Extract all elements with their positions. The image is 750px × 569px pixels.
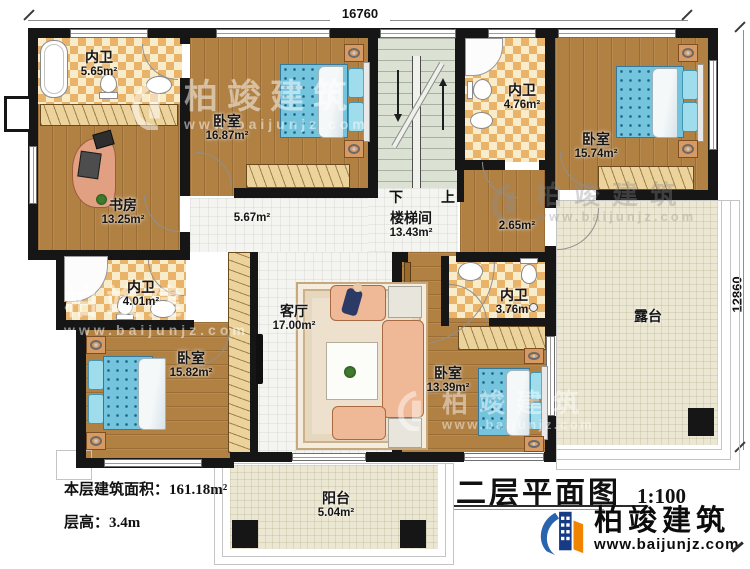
room-label-bedroom4: 卧室 13.39m² bbox=[408, 365, 488, 395]
pillow bbox=[682, 102, 698, 132]
room-name: 楼梯间 bbox=[370, 210, 452, 227]
room-area: 13.39m² bbox=[408, 382, 488, 396]
room-name: 卧室 bbox=[187, 113, 267, 130]
room-name: 卧室 bbox=[151, 350, 231, 367]
wall bbox=[392, 252, 408, 262]
headboard bbox=[541, 366, 548, 440]
window bbox=[380, 29, 456, 38]
room-label-corridor: 5.67m² bbox=[222, 212, 282, 226]
room-label-bedroom1: 卧室 16.87m² bbox=[187, 113, 267, 143]
sliding-door bbox=[292, 453, 366, 461]
room-label-hall2: 2.65m² bbox=[487, 220, 547, 234]
room-label-bathroom2: 内卫 4.76m² bbox=[482, 82, 562, 112]
window bbox=[464, 453, 544, 461]
room-area: 4.76m² bbox=[482, 99, 562, 113]
side-table bbox=[388, 418, 422, 448]
computer-monitor bbox=[77, 151, 101, 180]
wall bbox=[545, 38, 555, 190]
room-area: 3.76m² bbox=[474, 304, 554, 318]
dimension-tick bbox=[23, 9, 34, 20]
wall bbox=[489, 318, 545, 326]
wall bbox=[545, 190, 558, 200]
room-area: 13.25m² bbox=[83, 214, 163, 228]
room-area: 15.82m² bbox=[151, 367, 231, 381]
wall bbox=[596, 190, 718, 200]
room-label-study: 书房 13.25m² bbox=[83, 197, 163, 227]
wall bbox=[392, 452, 464, 462]
room-area: 4.01m² bbox=[101, 296, 181, 310]
room-name: 卧室 bbox=[556, 131, 636, 148]
nightstand bbox=[678, 140, 698, 158]
stair-arrow-up bbox=[442, 84, 444, 130]
nightstand bbox=[524, 348, 544, 364]
headboard bbox=[697, 64, 704, 142]
room-name: 内卫 bbox=[482, 82, 562, 99]
right-dimension-line bbox=[743, 30, 744, 450]
window bbox=[709, 60, 717, 150]
wardrobe bbox=[40, 104, 178, 126]
room-name: 卧室 bbox=[408, 365, 488, 382]
wardrobe bbox=[228, 252, 252, 453]
wall bbox=[456, 252, 556, 262]
pillow bbox=[348, 68, 364, 98]
headboard bbox=[363, 62, 370, 142]
room-name: 客厅 bbox=[254, 303, 334, 320]
balcony-pillar bbox=[232, 520, 258, 548]
brand-logo-icon bbox=[534, 506, 588, 558]
door-knob bbox=[529, 303, 538, 312]
wall bbox=[180, 38, 190, 44]
wall bbox=[76, 328, 86, 468]
pillow bbox=[682, 70, 698, 100]
bay-window bbox=[4, 96, 32, 132]
wardrobe bbox=[246, 164, 350, 188]
room-area: 16.87m² bbox=[187, 130, 267, 144]
room-area: 15.74m² bbox=[556, 148, 636, 162]
room-area: 2.65m² bbox=[487, 220, 547, 234]
pillow bbox=[88, 394, 104, 424]
room-label-terrace: 露台 bbox=[618, 308, 678, 325]
terrace-pillar bbox=[688, 408, 714, 436]
top-dimension-value: 16760 bbox=[330, 6, 390, 21]
watermark-logo-icon bbox=[6, 286, 58, 338]
bed-sheet bbox=[652, 68, 678, 138]
stair-arrow-up-head bbox=[439, 78, 447, 86]
stair-up-label: 上 bbox=[436, 187, 460, 207]
pillow bbox=[88, 360, 104, 390]
floor-height-text: 层高：3.4m bbox=[64, 511, 140, 532]
wall bbox=[455, 38, 465, 162]
pillow bbox=[348, 102, 364, 132]
room-label-balcony: 阳台 5.04m² bbox=[296, 490, 376, 520]
room-name: 书房 bbox=[83, 197, 163, 214]
wall bbox=[180, 232, 190, 258]
wall bbox=[230, 452, 292, 462]
room-name: 内卫 bbox=[59, 49, 139, 66]
bed-sheet bbox=[506, 370, 530, 436]
room-label-bathroom4: 内卫 3.76m² bbox=[474, 287, 554, 317]
window bbox=[558, 29, 676, 38]
room-area: 5.65m² bbox=[59, 66, 139, 80]
nightstand bbox=[86, 432, 106, 450]
nightstand bbox=[524, 436, 544, 452]
stair-center-rail bbox=[412, 56, 421, 188]
dimension-tick bbox=[681, 9, 692, 20]
sofa bbox=[332, 406, 386, 440]
window bbox=[70, 29, 148, 38]
wall bbox=[544, 452, 556, 462]
nightstand bbox=[344, 44, 364, 62]
room-name: 露台 bbox=[618, 308, 678, 325]
room-name: 内卫 bbox=[474, 287, 554, 304]
window bbox=[104, 459, 202, 467]
window bbox=[488, 29, 536, 38]
toilet-tank bbox=[99, 92, 118, 99]
stair-down-label: 下 bbox=[384, 187, 408, 207]
window bbox=[29, 146, 37, 204]
sink bbox=[146, 76, 172, 94]
room-label-living: 客厅 17.00m² bbox=[254, 303, 334, 333]
stair-arrow-down bbox=[397, 70, 399, 116]
room-name: 内卫 bbox=[101, 279, 181, 296]
room-name: 阳台 bbox=[296, 490, 376, 507]
room-label-bedroom2: 卧室 15.74m² bbox=[556, 131, 636, 161]
room-label-stairwell: 楼梯间 13.43m² bbox=[370, 210, 452, 240]
wardrobe bbox=[458, 326, 546, 350]
wall bbox=[234, 188, 378, 198]
room-label-bathroom1: 内卫 5.65m² bbox=[59, 49, 139, 79]
nightstand bbox=[86, 336, 106, 354]
sink bbox=[458, 262, 483, 281]
room-label-bathroom3: 内卫 4.01m² bbox=[101, 279, 181, 309]
nightstand bbox=[344, 140, 364, 158]
window bbox=[216, 29, 330, 38]
balcony-pillar bbox=[400, 520, 426, 548]
room-area: 13.43m² bbox=[370, 227, 452, 241]
brand-logo: 柏竣建筑 www.baijunjz.com bbox=[534, 506, 739, 558]
floorplan-canvas: 16760 12860 bbox=[0, 0, 750, 569]
toilet bbox=[521, 264, 537, 284]
wall bbox=[545, 200, 556, 208]
side-table bbox=[388, 286, 422, 318]
plant bbox=[344, 366, 356, 378]
nightstand bbox=[678, 44, 698, 62]
room-area: 17.00m² bbox=[254, 320, 334, 334]
wardrobe bbox=[598, 166, 694, 190]
stair-arrow-down-head bbox=[394, 114, 402, 122]
room-area: 5.04m² bbox=[296, 507, 376, 521]
wall bbox=[28, 250, 190, 260]
brand-url-text: www.baijunjz.com bbox=[594, 536, 739, 553]
tv bbox=[256, 334, 263, 384]
room-area: 5.67m² bbox=[222, 212, 282, 226]
floor-area-text: 本层建筑面积：161.18m² bbox=[64, 478, 227, 499]
bed-sheet bbox=[318, 66, 344, 138]
brand-name-text: 柏竣建筑 bbox=[594, 506, 739, 536]
sink bbox=[470, 112, 493, 129]
room-label-bedroom3: 卧室 15.82m² bbox=[151, 350, 231, 380]
